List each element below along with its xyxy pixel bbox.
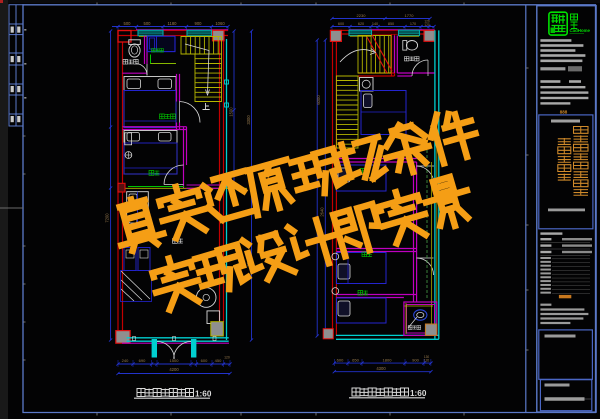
svg-text:7200: 7200 [105,213,110,223]
svg-text:170: 170 [410,22,416,26]
svg-text:4300: 4300 [376,366,386,371]
svg-text:1500: 1500 [170,358,180,363]
svg-text:1:60: 1:60 [410,389,427,398]
svg-text:140: 140 [372,22,378,26]
svg-text:1800: 1800 [383,358,393,363]
svg-text:900: 900 [412,358,419,363]
svg-text:1:60: 1:60 [195,389,212,398]
svg-text:500: 500 [124,21,132,26]
svg-text:3300: 3300 [246,115,251,125]
svg-text:600: 600 [338,22,344,26]
svg-text:4200: 4200 [169,367,179,372]
svg-text:CadHome: CadHome [570,28,591,33]
svg-text:240: 240 [122,358,129,363]
svg-text:690: 690 [139,358,146,363]
svg-text:120: 120 [224,356,230,360]
svg-text:1500: 1500 [229,107,234,117]
svg-text:6000: 6000 [316,95,321,105]
svg-text:450: 450 [215,358,222,363]
svg-text:2230: 2230 [357,13,367,18]
svg-text:120: 120 [424,23,430,27]
svg-text:600: 600 [201,358,208,363]
svg-text:120: 120 [424,359,430,363]
svg-text:500: 500 [144,21,152,26]
svg-text:600: 600 [337,358,344,363]
svg-text:1770: 1770 [405,13,415,18]
svg-text:620: 620 [358,22,364,26]
svg-text:850: 850 [388,22,394,26]
svg-text:1180: 1180 [167,21,177,26]
svg-text:1060: 1060 [215,21,225,26]
svg-text:900: 900 [195,21,203,26]
svg-text:888: 888 [560,110,568,115]
svg-text:650: 650 [352,358,359,363]
svg-text:2640: 2640 [320,207,325,217]
